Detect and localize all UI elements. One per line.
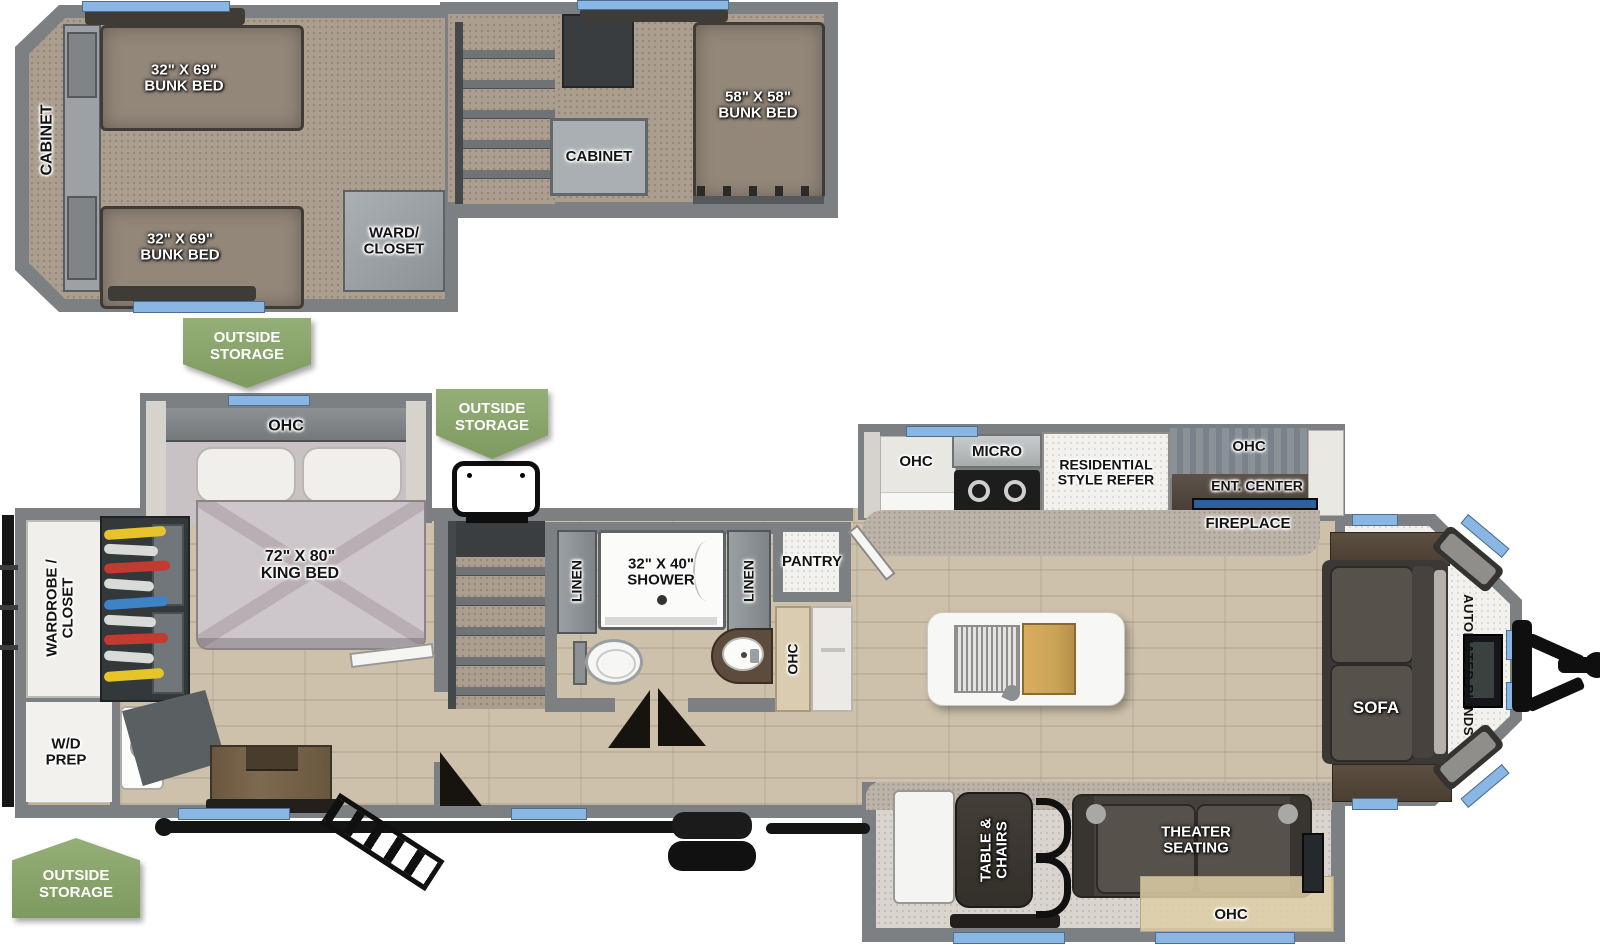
bath-wall-bottom-left xyxy=(545,698,615,712)
floorplan-canvas: CABINET 32" X 69" BUNK BED 32" X 69" BUN… xyxy=(0,0,1600,945)
loft-stair-cabinet-label: CABINET xyxy=(566,149,633,165)
dinette-ohc-label: OHC xyxy=(1214,907,1247,923)
outside-storage-badge-2: OUTSIDE STORAGE xyxy=(436,389,548,459)
hitch-ball xyxy=(1584,652,1600,678)
awning-rail-left xyxy=(166,821,696,833)
kitchen-slide-window xyxy=(906,426,978,437)
bath-wall-bottom-right xyxy=(688,698,785,712)
loft-railing-base xyxy=(693,196,824,204)
loft-bunk-bottom-rail xyxy=(108,286,256,301)
dinette-table-label: TABLE & CHAIRS xyxy=(978,806,1010,894)
linen-left-label: LINEN xyxy=(570,560,585,602)
outside-storage-badge-3: OUTSIDE STORAGE xyxy=(12,838,140,918)
kitchen-ohc-counter xyxy=(880,436,956,518)
loft-cabinet-label: CABINET xyxy=(40,104,57,175)
island-sink xyxy=(954,625,1020,693)
island-cutting-board xyxy=(1022,623,1076,695)
bed-pillow-left xyxy=(196,447,296,503)
cap-window-top-wall xyxy=(1352,514,1398,526)
king-bed-label: 72" X 80" KING BED xyxy=(244,549,356,583)
cap-window-bottom-wall xyxy=(1352,798,1398,810)
loft-rear-bunk-rail xyxy=(580,8,728,22)
main-stairs xyxy=(448,521,545,709)
bottom-window-1 xyxy=(178,808,290,820)
dinette-tv xyxy=(1302,833,1324,893)
pantry-label: PANTRY xyxy=(782,554,842,570)
dinette-window-1 xyxy=(953,932,1065,944)
wd-prep-label: W/D PREP xyxy=(36,736,96,768)
bath-wall-left xyxy=(545,522,557,712)
wardrobe-label: WARDROBE / CLOSET xyxy=(44,545,76,671)
loft-window-rear-top xyxy=(577,0,729,10)
loft-cabinet-lower-module xyxy=(67,196,97,280)
theater-seating-label: THEATER SEATING xyxy=(1150,824,1242,856)
bedroom-ohc-label: OHC xyxy=(268,419,304,436)
kitchen-ohc-label: OHC xyxy=(899,454,932,470)
bedroom-slide-window xyxy=(228,395,310,406)
loft-bunk-bottom-label: 32" X 69" BUNK BED xyxy=(125,231,235,263)
sofa xyxy=(1322,560,1448,764)
hall-counter xyxy=(811,606,853,712)
stove xyxy=(954,470,1040,514)
loft-cabinet-upper-module xyxy=(67,32,97,98)
exterior-tv-base xyxy=(466,517,528,523)
loft-stairs xyxy=(455,22,555,204)
microwave-label: MICRO xyxy=(972,444,1022,460)
outside-storage-badge-1: OUTSIDE STORAGE xyxy=(183,318,311,388)
loft-bunk-top-label: 32" X 69" BUNK BED xyxy=(129,62,239,94)
ent-center-tv xyxy=(1192,498,1318,510)
entry-steps xyxy=(668,812,756,872)
loft-ward-closet-label: WARD/ CLOSET xyxy=(357,225,431,257)
hall-ohc-label: OHC xyxy=(786,643,801,674)
refrigerator-label: RESIDENTIAL STYLE REFER xyxy=(1054,457,1158,486)
rear-ladder xyxy=(2,515,14,807)
awning-rail-right xyxy=(766,823,870,834)
bedroom-divider-wall xyxy=(434,514,448,692)
hitch-arm-bottom xyxy=(1525,676,1585,712)
automated-blinds-label: AUTOMATED BLINDS xyxy=(1461,594,1475,736)
shower-label: 32" X 40" SHOWER xyxy=(615,556,707,588)
loft-window-bottom xyxy=(133,301,265,313)
kitchen-island xyxy=(927,612,1125,706)
bottom-window-2 xyxy=(511,808,587,820)
kitchen-slide-sidewall-left xyxy=(864,432,880,518)
exterior-tv-icon xyxy=(452,461,540,517)
bedroom-slide-sidewall-left xyxy=(146,401,166,519)
ent-center-label: ENT. CENTER xyxy=(1211,479,1303,494)
fireplace-label: FIREPLACE xyxy=(1205,516,1290,532)
bath-sink xyxy=(722,637,764,671)
loft-rear-bunk-label: 58" X 58" BUNK BED xyxy=(708,89,808,121)
toilet-bowl xyxy=(585,639,643,685)
dinette-window-2 xyxy=(1155,932,1295,944)
sofa-label: SOFA xyxy=(1353,699,1399,717)
bedroom-dresser xyxy=(210,745,332,803)
ent-ohc-label: OHC xyxy=(1232,439,1265,455)
loft-stair-landing xyxy=(562,14,634,88)
loft-window-top xyxy=(82,1,230,12)
dinette-cabinet xyxy=(893,790,955,904)
linen-right-label: LINEN xyxy=(742,560,757,602)
bed-pillow-right xyxy=(302,447,402,503)
awning-rail-endcap xyxy=(155,818,173,836)
